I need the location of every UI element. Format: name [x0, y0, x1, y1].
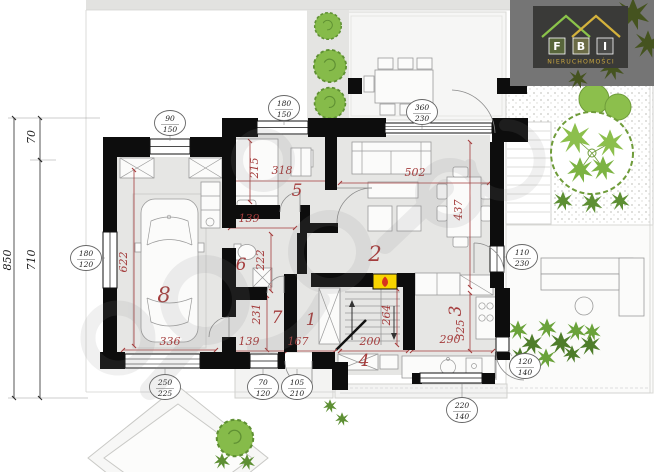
- svg-text:230: 230: [414, 114, 430, 123]
- logo-letter-b: B: [577, 40, 585, 53]
- coffee-table: [368, 182, 418, 198]
- svg-text:110: 110: [515, 248, 530, 257]
- svg-text:90: 90: [165, 114, 175, 123]
- dim-wc-width: 139: [239, 212, 260, 225]
- room-number-kitchen: 3: [446, 306, 466, 317]
- terrace-column: [348, 78, 362, 94]
- dim-total-depth: 850: [1, 250, 14, 271]
- path-bushes: [314, 13, 346, 119]
- logo-subtitle: NIERUCHOMOŚCI: [547, 57, 615, 66]
- boiler: [201, 182, 220, 228]
- svg-text:140: 140: [518, 368, 533, 377]
- floor-plan-page: 622 336 215 318 139 222 139 231 167 200 …: [0, 0, 654, 472]
- svg-text:105: 105: [290, 378, 305, 387]
- svg-text:210: 210: [289, 389, 305, 398]
- svg-text:230: 230: [514, 259, 530, 268]
- black-dimension-labels: 850 70 710: [1, 130, 38, 271]
- svg-text:120: 120: [256, 389, 271, 398]
- logo-letter-f: F: [553, 40, 561, 53]
- logo-letter-boxes: F B I: [549, 38, 613, 54]
- svg-text:150: 150: [163, 125, 178, 134]
- dim-front-offset: 70: [25, 130, 38, 144]
- room-number-hall: 7: [272, 308, 283, 328]
- window-tag-180-120: 180 120: [71, 246, 106, 271]
- svg-text:150: 150: [277, 110, 292, 119]
- dim-stairs-depth: 264: [380, 305, 393, 327]
- svg-text:220: 220: [454, 401, 470, 410]
- dim-kitchen-width: 290: [439, 333, 461, 346]
- svg-text:180: 180: [277, 99, 292, 108]
- dim-main-depth: 710: [25, 250, 38, 271]
- floor-plan-image: 622 336 215 318 139 222 139 231 167 200 …: [0, 0, 654, 472]
- dim-garage-depth: 622: [117, 252, 130, 273]
- pouf: [368, 206, 392, 231]
- dim-stairs-width: 200: [359, 335, 381, 348]
- dim-wc-depth: 222: [254, 250, 267, 272]
- svg-text:180: 180: [79, 249, 94, 258]
- window-tag-90-150: 90 150: [155, 111, 186, 142]
- svg-text:140: 140: [455, 412, 470, 421]
- bottom-terrace: [335, 384, 507, 398]
- svg-text:120: 120: [79, 260, 94, 269]
- svg-text:120: 120: [518, 357, 533, 366]
- logo-letter-i: I: [603, 40, 607, 53]
- fireplace: [373, 274, 397, 289]
- room-number-bedroom: 5: [292, 181, 303, 201]
- svg-text:70: 70: [258, 378, 268, 387]
- dim-hall-depth: 231: [250, 304, 263, 326]
- room-number-stairs: 4: [358, 351, 370, 371]
- svg-text:360: 360: [415, 103, 430, 112]
- sliding-terrace-door: [385, 123, 492, 133]
- logo-block: F B I NIERUCHOMOŚCI: [510, 0, 654, 89]
